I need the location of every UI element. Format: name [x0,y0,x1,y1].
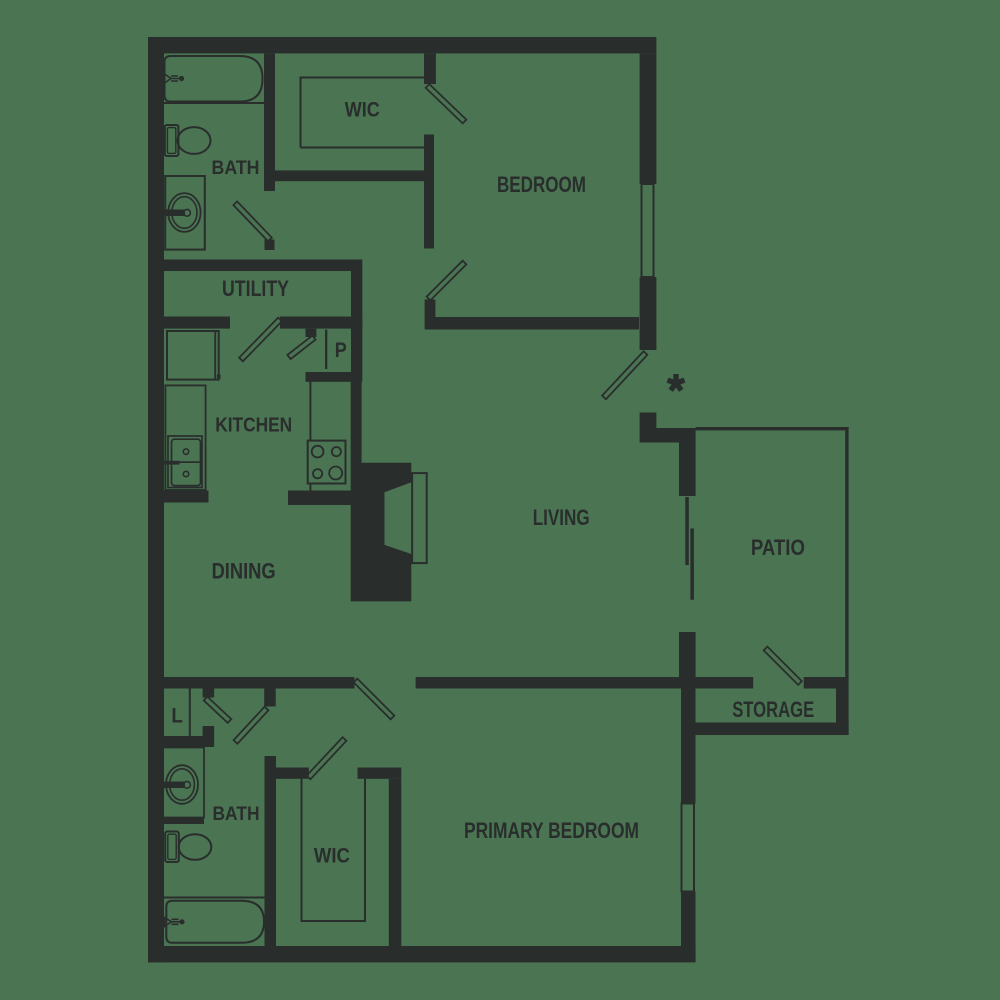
svg-text:WIC: WIC [345,97,380,121]
svg-text:BEDROOM: BEDROOM [497,172,586,197]
svg-text:BATH: BATH [212,157,260,179]
svg-text:PRIMARY BEDROOM: PRIMARY BEDROOM [464,818,639,843]
svg-text:LIVING: LIVING [533,505,590,530]
svg-text:BATH: BATH [213,804,260,825]
svg-text:WIC: WIC [314,845,350,868]
svg-text:P: P [335,339,347,362]
svg-text:DINING: DINING [212,559,276,584]
svg-text:UTILITY: UTILITY [222,276,289,301]
svg-text:STORAGE: STORAGE [732,697,814,722]
svg-text:PATIO: PATIO [751,535,805,560]
svg-text:KITCHEN: KITCHEN [215,414,292,436]
svg-text:L: L [171,705,183,728]
